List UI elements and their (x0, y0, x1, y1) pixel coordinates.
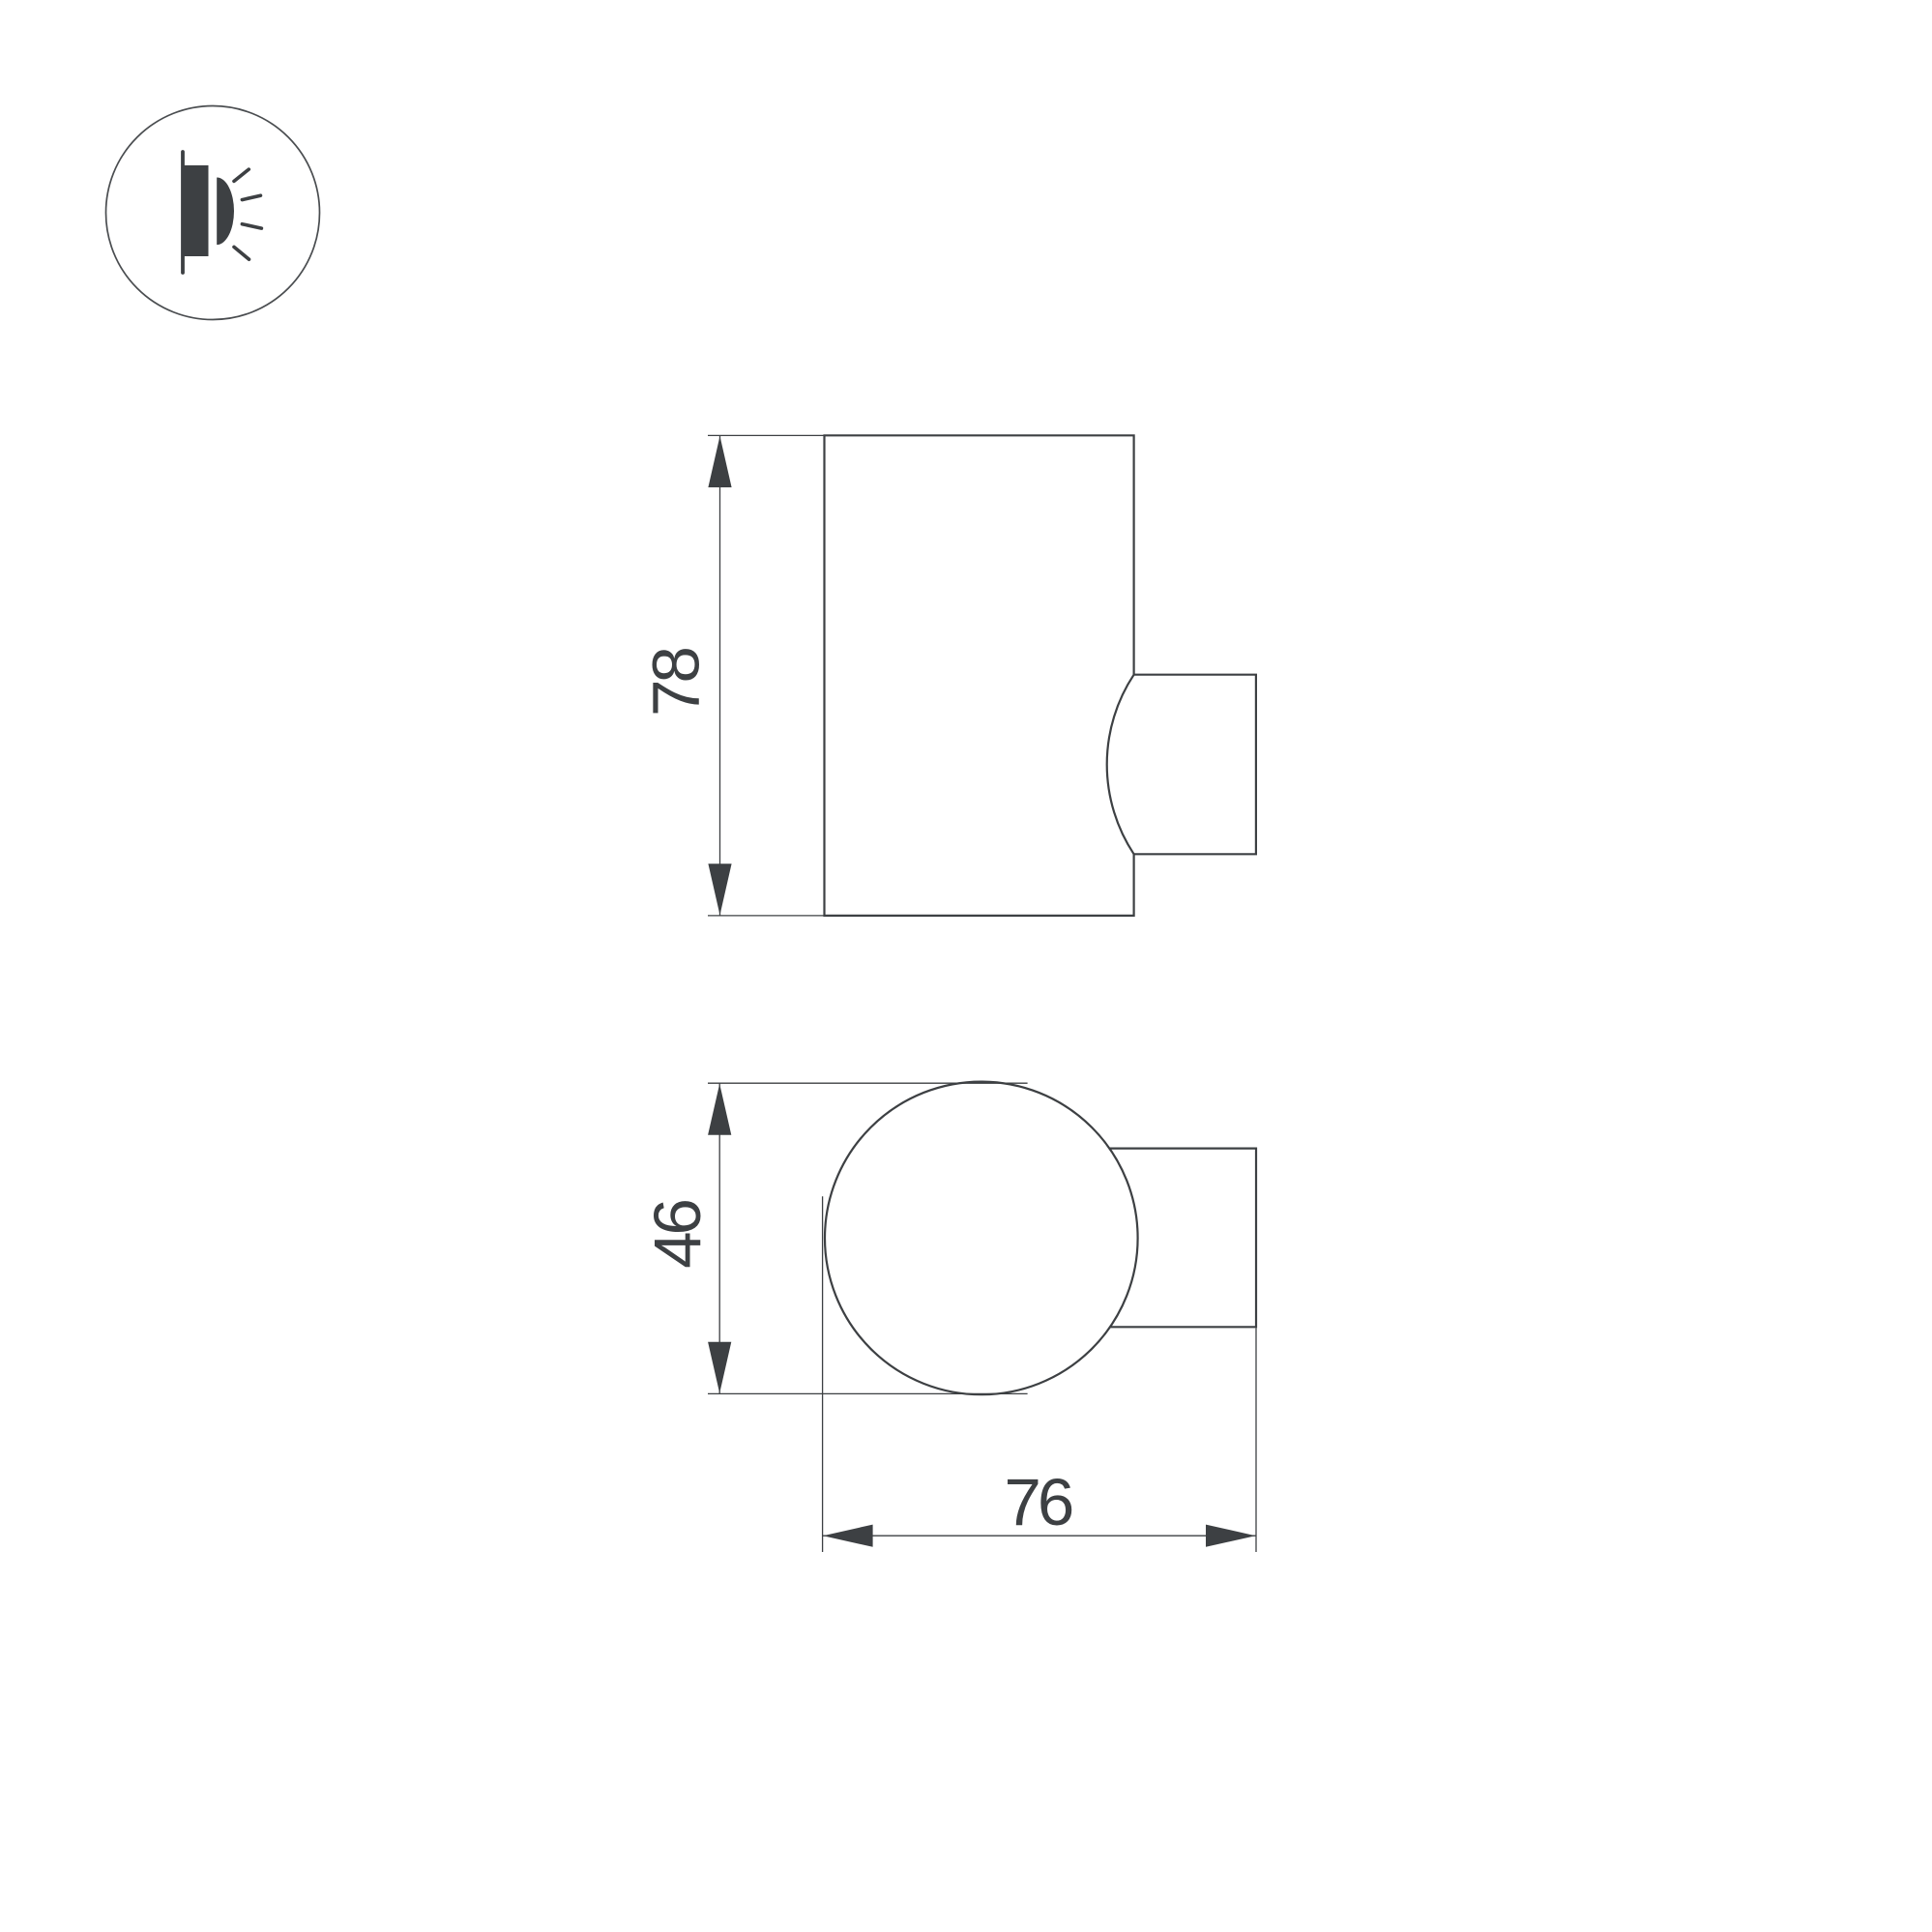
svg-text:76: 76 (1005, 1465, 1072, 1539)
svg-text:78: 78 (639, 649, 714, 717)
svg-text:46: 46 (640, 1201, 715, 1269)
